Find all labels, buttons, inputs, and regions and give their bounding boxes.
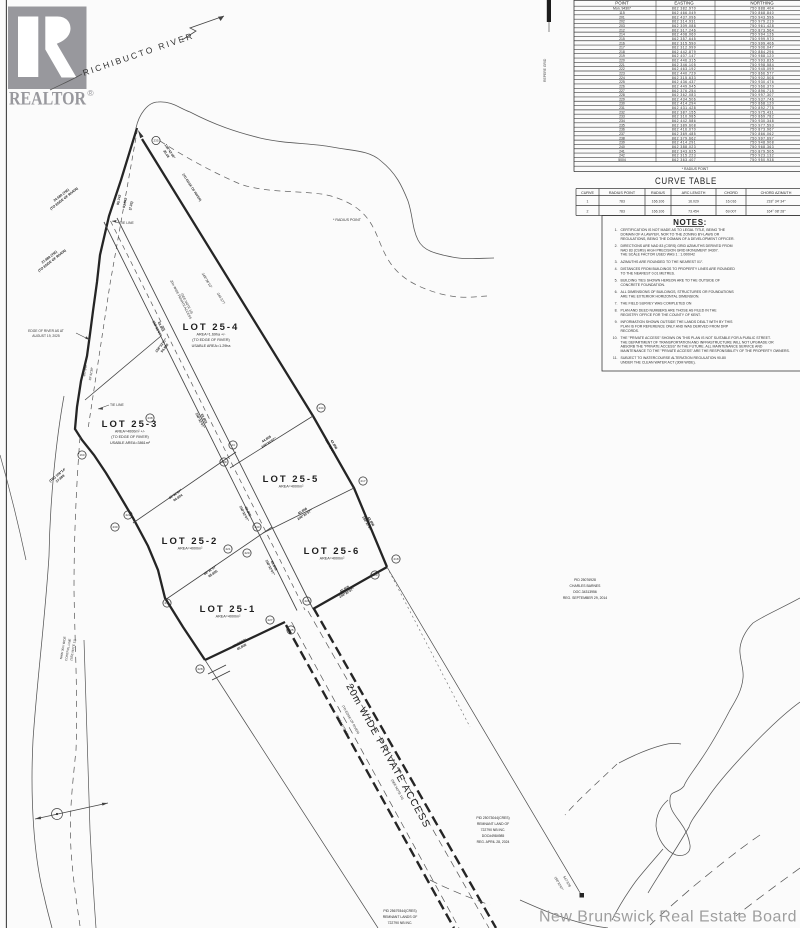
svg-text:AUGUST 19, 2025: AUGUST 19, 2025: [32, 334, 60, 338]
svg-text:5.: 5.: [615, 278, 618, 282]
svg-text:RADIUS: RADIUS: [651, 191, 665, 195]
svg-text:AREA=4000m²: AREA=4000m²: [178, 547, 203, 551]
svg-text:228: 228: [197, 667, 202, 671]
svg-text:REPERE GRID: REPERE GRID: [543, 58, 547, 82]
svg-text:AREA=4000m² +/-: AREA=4000m² +/-: [115, 430, 146, 434]
svg-text:DOC.34313956: DOC.34313956: [573, 590, 597, 594]
svg-text:* RADIUS POINT: * RADIUS POINT: [682, 167, 708, 171]
svg-text:160: 160: [79, 453, 84, 457]
svg-text:95.742: 95.742: [116, 194, 122, 205]
svg-text:REG. SEPTEMBER 29, 2014: REG. SEPTEMBER 29, 2014: [563, 596, 607, 600]
svg-text:16.029: 16.029: [688, 200, 699, 204]
svg-text:DOC#4984985: DOC#4984985: [482, 834, 505, 838]
svg-text:REALTOR: REALTOR: [9, 89, 86, 110]
svg-text:20m WIDE PRIVATE ACCESS: 20m WIDE PRIVATE ACCESS: [343, 682, 432, 830]
svg-text:2: 2: [587, 210, 589, 214]
svg-text:NORTHING: NORTHING: [750, 1, 774, 6]
svg-text:16.016: 16.016: [726, 200, 737, 204]
svg-text:ALL DIMENSIONS OF BUILDINGS, S: ALL DIMENSIONS OF BUILDINGS, STRUCTURES …: [621, 290, 735, 294]
svg-text:783: 783: [619, 210, 625, 214]
svg-text:LOT 25-3: LOT 25-3: [102, 419, 159, 430]
svg-text:PID 25073044(CRES): PID 25073044(CRES): [476, 816, 509, 820]
svg-text:* RADIUS POINT: * RADIUS POINT: [333, 218, 362, 222]
svg-text:TIE LINE: TIE LINE: [110, 403, 124, 407]
svg-text:234: 234: [318, 406, 323, 410]
svg-text:11.: 11.: [613, 356, 618, 360]
svg-text:8.: 8.: [615, 309, 618, 313]
svg-text:CHORD AZIMUTH: CHORD AZIMUTH: [761, 191, 792, 195]
svg-text:EDGE OF RIVER AS AT: EDGE OF RIVER AS AT: [28, 329, 64, 333]
svg-text:DOMAIN OF A LAWYER, NOR TO THE: DOMAIN OF A LAWYER, NOR TO THE ZONING BY…: [621, 232, 720, 236]
svg-text:24: 24: [231, 443, 235, 447]
svg-text:9.: 9.: [615, 320, 618, 324]
svg-text:20m WIDE PRIVATE ACCESS: 20m WIDE PRIVATE ACCESS: [169, 279, 192, 319]
svg-text:225: 225: [288, 628, 293, 632]
svg-text:218: 218: [393, 557, 398, 561]
svg-text:235: 235: [153, 139, 158, 143]
svg-text:166.106: 166.106: [652, 200, 665, 204]
svg-text:239: 239: [221, 460, 226, 464]
svg-text:1: 1: [587, 200, 589, 204]
svg-text:ARC LENGTH: ARC LENGTH: [682, 191, 706, 195]
svg-text:®: ®: [87, 88, 94, 98]
svg-text:221: 221: [225, 547, 230, 551]
svg-text:5004: 5004: [618, 158, 626, 162]
svg-text:AREA=1.69ha +/-: AREA=1.69ha +/-: [197, 333, 227, 337]
svg-text:69.007: 69.007: [726, 210, 737, 214]
svg-text:RICHIBUCTO RIVER: RICHIBUCTO RIVER: [81, 30, 195, 78]
svg-text:10°42′39″: 10°42′39″: [88, 366, 94, 381]
svg-text:307.945: 307.945: [82, 365, 88, 377]
svg-text:INFORMATION SHOWN OUTSIDE THE: INFORMATION SHOWN OUTSIDE THE LANDS DEAL…: [621, 320, 734, 324]
svg-text:218° 34′ 34″: 218° 34′ 34″: [767, 200, 787, 204]
svg-text:UNDER THE CLEAN WATER ACT (30M: UNDER THE CLEAN WATER ACT (30M WIDE).: [621, 361, 696, 365]
svg-text:LOT 25-4: LOT 25-4: [183, 322, 240, 333]
svg-text:AREA=4000m²: AREA=4000m²: [320, 557, 345, 561]
svg-text:BUILDING TIES SHOWN HEREON ARE: BUILDING TIES SHOWN HEREON ARE TO THE OU…: [621, 278, 721, 282]
svg-text:222: 222: [125, 513, 130, 517]
svg-text:CHARLES BARNES: CHARLES BARNES: [570, 584, 602, 588]
svg-text:783: 783: [619, 200, 625, 204]
svg-text:2.: 2.: [615, 244, 618, 248]
svg-text:REMNANT LAND OF: REMNANT LAND OF: [477, 822, 509, 826]
svg-text:220: 220: [244, 551, 249, 555]
svg-text:EASTING: EASTING: [674, 1, 694, 6]
svg-text:New Brunswick Real Estate Boar: New Brunswick Real Estate Board: [539, 909, 797, 926]
svg-text:230: 230: [112, 525, 117, 529]
svg-text:244.577: 244.577: [216, 292, 226, 305]
svg-text:LOT 25-1: LOT 25-1: [200, 604, 257, 615]
svg-text:MAINTENANCE TO THE "PRIVATE AC: MAINTENANCE TO THE "PRIVATE ACCESS" ARE …: [621, 349, 790, 353]
svg-text:PLAN IS FOR REFERENCE ONLY AND: PLAN IS FOR REFERENCE ONLY AND WAS DERIV…: [621, 324, 729, 328]
svg-text:3.: 3.: [615, 260, 618, 264]
svg-text:(TO EDGE OF RIVER): (TO EDGE OF RIVER): [111, 435, 148, 439]
svg-text:226: 226: [304, 599, 309, 603]
svg-text:240: 240: [254, 525, 259, 529]
svg-text:DISTANCES FROM BUILDINGS TO PR: DISTANCES FROM BUILDINGS TO PROPERTY LIN…: [621, 267, 736, 271]
svg-text:RECORDS.: RECORDS.: [621, 329, 640, 333]
svg-text:REGISTRY OFFICE FOR THE COUNTY: REGISTRY OFFICE FOR THE COUNTY OF KENT.: [621, 313, 702, 317]
svg-text:CHORD: CHORD: [724, 191, 738, 195]
svg-text:722790 NB INC.: 722790 NB INC.: [388, 921, 413, 925]
svg-text:NAD 83 (CSRS) HIGH PRECISION G: NAD 83 (CSRS) HIGH PRECISION GRID MONUME…: [621, 248, 719, 252]
svg-text:THE SCALE FACTOR USED WAS 1 :: THE SCALE FACTOR USED WAS 1 : 1.000042: [621, 253, 696, 257]
svg-text:AZIMUTHS ARE ROUNDED TO THE NE: AZIMUTHS ARE ROUNDED TO THE NEAREST 01″.: [621, 260, 704, 264]
svg-text:PID 25679344(CRES): PID 25679344(CRES): [383, 909, 416, 913]
svg-text:722790 NB INC.: 722790 NB INC.: [481, 828, 506, 832]
svg-text:REGULATIONS, BEING THE DOMAIN: REGULATIONS, BEING THE DOMAIN OF A DEVEL…: [621, 237, 735, 241]
svg-text:6.: 6.: [615, 290, 618, 294]
svg-text:PLAN AND DEED NUMBERS ARE THOS: PLAN AND DEED NUMBERS ARE THOSE AS FILED…: [621, 309, 718, 313]
svg-text:DIRECTIONS ARE NAD 83 (CSRS) G: DIRECTIONS ARE NAD 83 (CSRS) GRID AZIMUT…: [621, 244, 733, 248]
svg-text:249°36′10″: 249°36′10″: [201, 272, 214, 289]
svg-text:TIE LINE: TIE LINE: [120, 221, 134, 225]
svg-text:AREA=4000m²: AREA=4000m²: [279, 485, 304, 489]
svg-text:93.542: 93.542: [122, 197, 128, 208]
svg-text:(TO EDGE OF RIVER): (TO EDGE OF RIVER): [192, 338, 229, 342]
svg-text:REG. APRIL 28, 2024: REG. APRIL 28, 2024: [477, 840, 510, 844]
svg-text:THE "PRIVATE ACCESS" SHOWN ON: THE "PRIVATE ACCESS" SHOWN ON THIS PLAN …: [621, 336, 771, 340]
svg-text:LOT 25-6: LOT 25-6: [304, 546, 361, 557]
svg-text:750 950.938: 750 950.938: [750, 158, 774, 162]
svg-text:POINT: POINT: [615, 1, 629, 6]
svg-text:231: 231: [164, 601, 169, 605]
svg-text:1.: 1.: [615, 228, 618, 232]
svg-text:(7.33): (7.33): [128, 201, 134, 210]
svg-text:PID 25076928: PID 25076928: [574, 578, 596, 582]
svg-text:LOT 25-5: LOT 25-5: [263, 474, 320, 485]
svg-text:ABSORB THE "PRIVATE ACCESS" IN: ABSORB THE "PRIVATE ACCESS" IN THE FUTUR…: [621, 345, 763, 349]
svg-text:219: 219: [372, 573, 377, 577]
svg-text:4.: 4.: [615, 267, 618, 271]
svg-text:NOTES:: NOTES:: [673, 218, 707, 227]
svg-text:238: 238: [147, 416, 152, 420]
svg-text:CURVE TABLE: CURVE TABLE: [655, 176, 717, 186]
svg-text:THE DEPARTMENT OF TRANSPORTATI: THE DEPARTMENT OF TRANSPORTATION AND INF…: [621, 340, 775, 344]
svg-text:CERTIFICATION IS NOT MADE AS T: CERTIFICATION IS NOT MADE AS TO LEGAL TI…: [621, 228, 726, 232]
svg-text:164° 08′ 28″: 164° 08′ 28″: [767, 210, 787, 214]
svg-text:217: 217: [360, 479, 365, 483]
svg-text:CURVE: CURVE: [581, 191, 594, 195]
svg-text:REMNANT LANDS OF: REMNANT LANDS OF: [383, 915, 418, 919]
svg-text:227: 227: [267, 618, 272, 622]
svg-text:LOT 25-2: LOT 25-2: [162, 536, 219, 547]
svg-text:SUBJECT TO WATERCOURSE ALTERAT: SUBJECT TO WATERCOURSE ALTERATION REGULA…: [621, 356, 726, 360]
svg-text:USABLE AREA=3861m²: USABLE AREA=3861m²: [110, 441, 151, 445]
svg-text:7.: 7.: [615, 301, 618, 305]
svg-text:10.: 10.: [613, 336, 618, 340]
svg-text:THE FIELD SURVEY WAS COMPLETED: THE FIELD SURVEY WAS COMPLETED ON: [621, 301, 692, 305]
svg-text:TO THE NEAREST 0.01 METRES.: TO THE NEAREST 0.01 METRES.: [621, 271, 675, 275]
svg-text:USABLE AREA=1.29ha: USABLE AREA=1.29ha: [192, 344, 232, 348]
svg-text:ARE THE EXTERIOR HORIZONTAL DI: ARE THE EXTERIOR HORIZONTAL DIMENSION.: [621, 294, 700, 298]
svg-text:(TO EDGE OF RIVER): (TO EDGE OF RIVER): [181, 173, 202, 202]
svg-text:862 363.407: 862 363.407: [672, 158, 696, 162]
svg-text:73.454: 73.454: [688, 210, 699, 214]
svg-text:CONCRETE FOUNDATION.: CONCRETE FOUNDATION.: [621, 283, 665, 287]
svg-text:AREA=4000m²: AREA=4000m²: [216, 615, 241, 619]
svg-text:166.106: 166.106: [652, 210, 665, 214]
svg-text:RADIUS POINT: RADIUS POINT: [609, 191, 636, 195]
